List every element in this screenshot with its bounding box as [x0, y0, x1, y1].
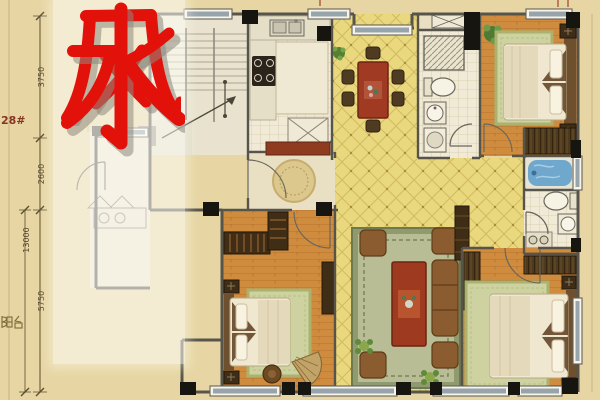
bedroom-bottom-left	[222, 210, 335, 392]
sink-2	[558, 214, 578, 234]
foyer	[248, 152, 335, 210]
toilet-2	[544, 192, 578, 210]
window	[352, 25, 412, 35]
kitchen-bar-counter	[266, 142, 330, 155]
bathroom-2	[524, 190, 578, 254]
bed	[224, 294, 290, 370]
coffee-table	[392, 262, 426, 346]
bathroom-sink	[424, 102, 446, 124]
washer	[424, 128, 446, 152]
overlay-strip: 风 水	[53, 0, 185, 364]
pillow	[550, 86, 562, 114]
window	[518, 386, 562, 396]
wardrobe-2	[524, 256, 576, 274]
building-number-label: 28#	[1, 114, 26, 127]
window	[433, 386, 509, 396]
bedroom-bottom-right	[462, 248, 578, 392]
loveseat	[432, 260, 458, 336]
window	[303, 386, 397, 396]
bed	[490, 290, 578, 382]
tv-cabinet-2	[322, 262, 335, 314]
window	[210, 386, 280, 396]
pillow	[552, 300, 564, 332]
armchair	[360, 352, 386, 378]
armchair	[432, 342, 458, 368]
window	[573, 298, 582, 364]
living-room	[335, 158, 469, 392]
window	[526, 9, 572, 19]
armchair	[432, 228, 458, 254]
kitchen-sink	[270, 19, 304, 36]
pillow	[236, 335, 247, 360]
dining-table	[358, 62, 388, 118]
pillow	[552, 340, 564, 372]
pillow	[236, 304, 247, 329]
bathtub	[524, 156, 576, 190]
dim-segment-top: 3750	[37, 67, 46, 87]
bookshelf	[268, 212, 288, 250]
mini-counter	[526, 232, 552, 248]
pillow	[550, 50, 562, 78]
window	[308, 9, 350, 19]
armchair	[360, 230, 386, 256]
bookshelf	[224, 232, 270, 254]
stove	[252, 56, 276, 86]
window	[573, 156, 582, 190]
dim-segment-middle: 2600	[37, 164, 46, 184]
round-rug	[273, 160, 315, 202]
hanzi-shui: 水	[53, 0, 185, 162]
window	[184, 9, 232, 19]
dim-overall: 13000	[22, 227, 31, 252]
dining-room	[332, 14, 418, 160]
bed	[504, 38, 576, 124]
wardrobe	[524, 128, 576, 154]
dim-segment-bottom: 5750	[37, 291, 46, 311]
toilet	[424, 78, 455, 96]
feng-shui-floorplan-image: 3750 2600 5750 13000 28# 阳台	[0, 0, 600, 400]
shower	[424, 36, 464, 70]
